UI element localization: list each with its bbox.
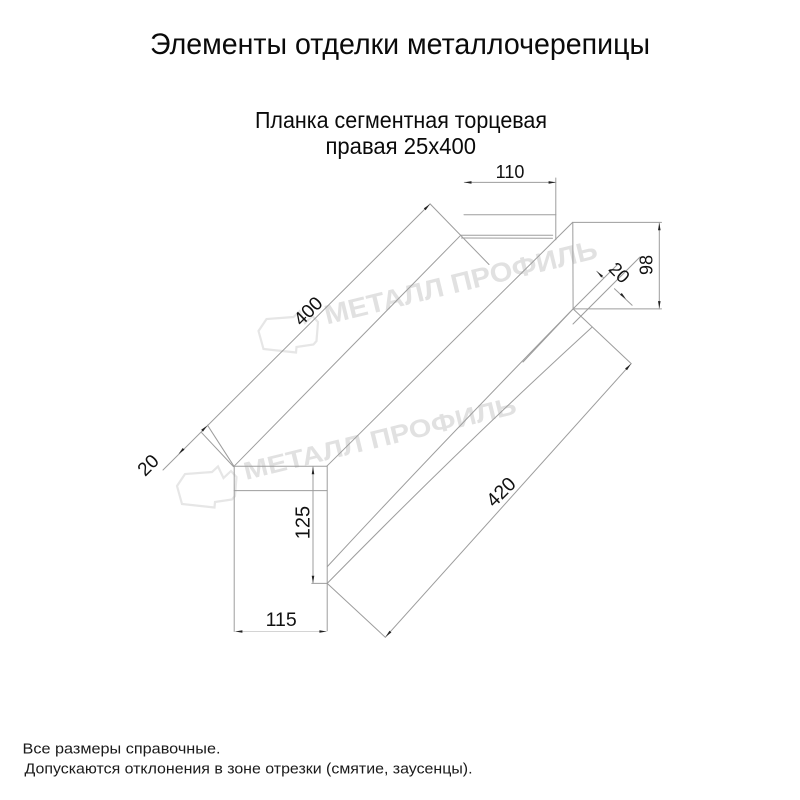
svg-text:правая 25х400: правая 25х400 (326, 133, 477, 159)
svg-text:Допускаются отклонения в зоне: Допускаются отклонения в зоне отрезки (с… (25, 762, 473, 778)
svg-text:Элементы отделки металлочерепи: Элементы отделки металлочерепицы (150, 28, 650, 61)
svg-text:98: 98 (637, 255, 657, 275)
svg-text:Планка сегментная торцевая: Планка сегментная торцевая (255, 107, 547, 133)
svg-text:110: 110 (496, 162, 525, 182)
svg-text:115: 115 (266, 609, 297, 631)
svg-text:Все размеры справочные.: Все размеры справочные. (23, 742, 221, 758)
svg-text:125: 125 (293, 506, 315, 539)
